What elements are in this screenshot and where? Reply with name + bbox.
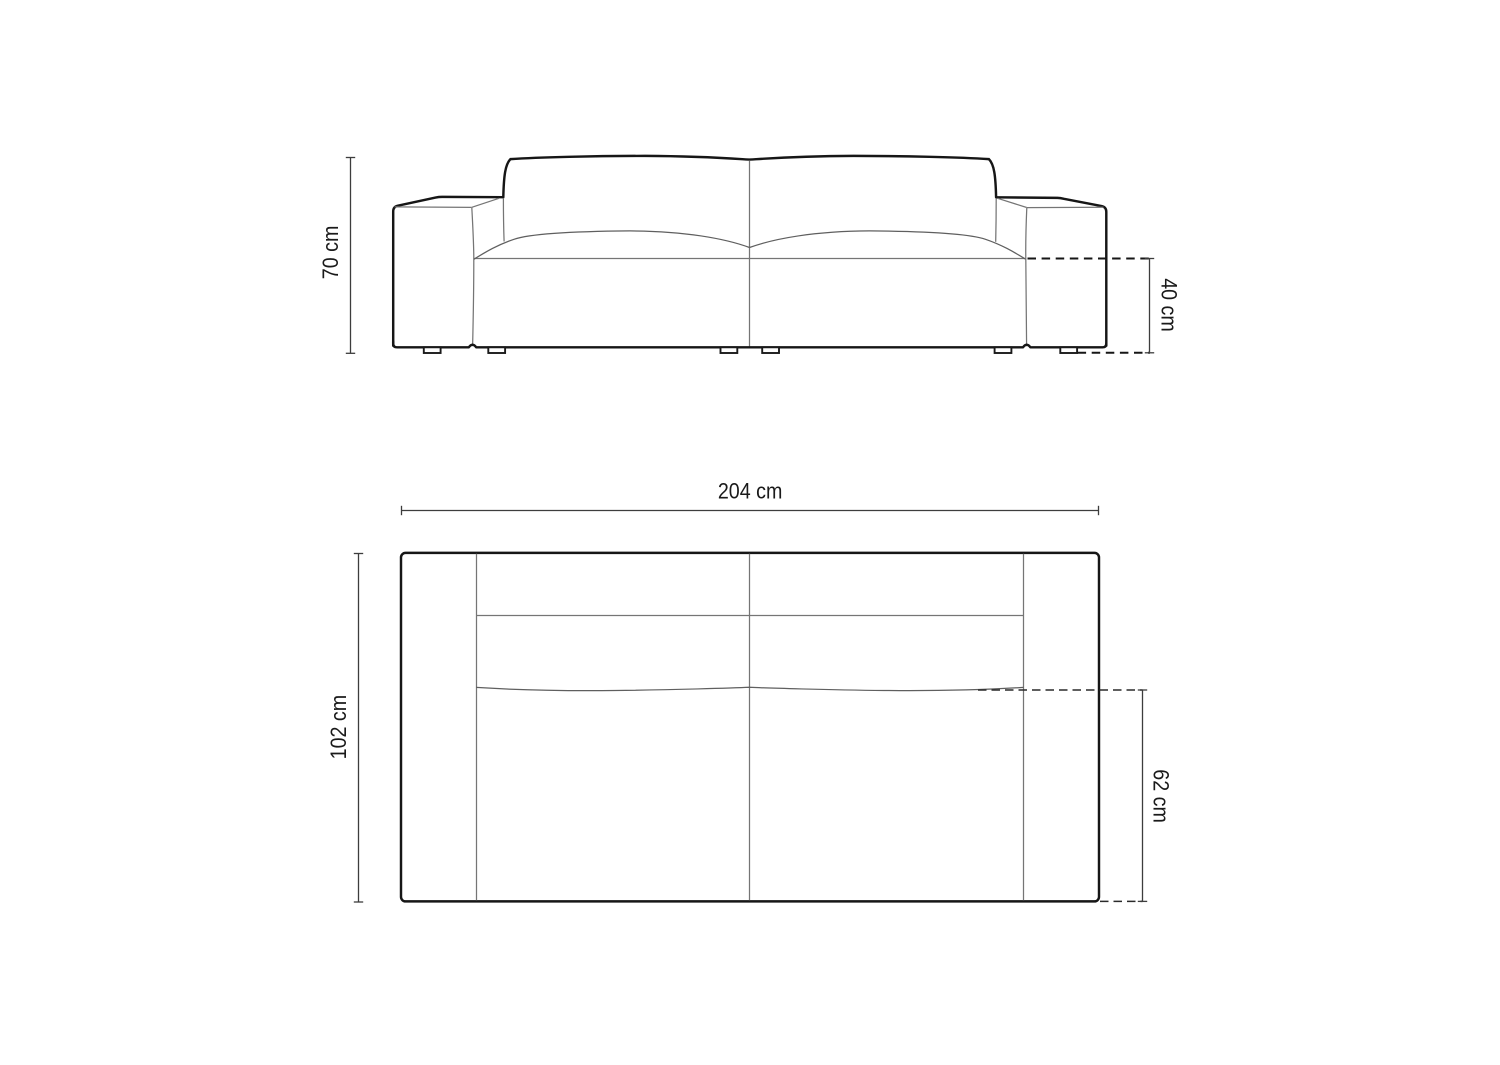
svg-text:204 cm: 204 cm	[718, 479, 783, 503]
svg-text:40 cm: 40 cm	[1156, 278, 1180, 332]
svg-text:62 cm: 62 cm	[1148, 769, 1172, 823]
svg-text:102 cm: 102 cm	[327, 695, 351, 760]
svg-text:70 cm: 70 cm	[319, 226, 343, 280]
